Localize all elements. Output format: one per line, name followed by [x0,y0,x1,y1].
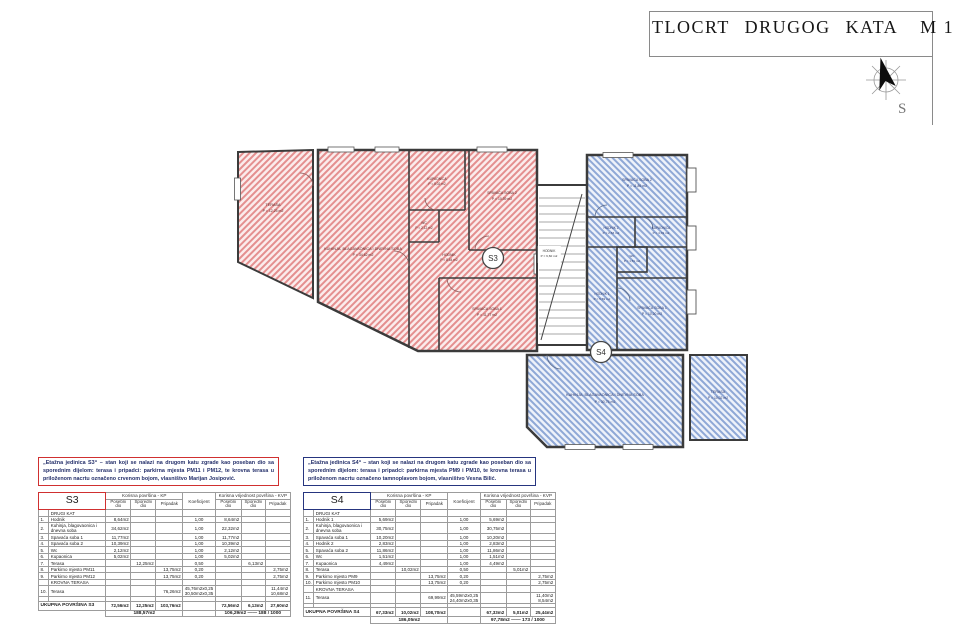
kvp-grand-total: 106,29m2 —— 188 / 1000 [215,610,290,617]
column-subheader: Sporedni dio [396,499,421,510]
area-value-cell [106,586,131,597]
room-area: P = 5,02 m2 [428,182,445,186]
column-subheader: Pripadak [530,499,555,510]
area-value-cell [506,592,530,603]
area-value-cell: 22,32m2 [215,523,241,534]
column-subheader: Sporedni dio [241,499,265,510]
room-area: P = 34,62 m2 [353,253,374,257]
total-value-cell: 67,33m2 [480,608,506,617]
room-label: TERASA [265,203,281,207]
room-area: P = 1,51 m2 [624,259,641,263]
room-area: P = 11,86 m2 [627,184,647,188]
area-value-cell [241,523,265,534]
north-compass: S [858,56,914,116]
sheet-border-top [649,11,933,12]
total-value-cell: 12,25m2 [131,601,156,610]
compass-label: S [898,101,906,116]
total-value-cell: 25,44m2 [530,608,555,617]
room-label: HODNIK [442,253,456,257]
table-cell [304,617,371,624]
table-row: 2.Kuhinja, blagovaonica i dnevna soba34,… [39,523,291,534]
coefficient-cell: 1,00 [183,523,216,534]
koeficijent-header: Koeficijent [448,493,481,510]
room-area: P = 12,25 m2 [263,209,284,213]
total-row: UKUPNA POVRŠINA S372,56m212,25m2103,76m2… [39,601,291,610]
drawing-sheet: TLOCRT DRUGOG KATAM 1 : 100 S [0,0,960,633]
area-table-s3: S3Korisna površina - KPKoeficijentKorisn… [38,492,291,617]
column-subheader: Posebni dio [480,499,506,510]
area-value-cell [265,523,290,534]
room-name-cell: Terasa [314,592,371,603]
total-label: UKUPNA POVRŠINA S3 [39,601,106,610]
room-name-cell: Kuhinja, blagovaonica i dnevna soba [314,523,371,534]
room-label: SPAVAĆA SOBA 1 [637,305,667,310]
area-value-cell [241,586,265,597]
column-subheader: Sporedni dio [506,499,530,510]
row-number: 10. [39,586,49,597]
row-number: 2. [304,523,314,534]
area-value-cell: 34,62m2 [106,523,131,534]
room-label: WC [630,254,636,258]
area-value-cell [421,523,448,534]
total-value-cell [448,608,481,617]
total-label: UKUPNA POVRŠINA S4 [304,608,371,617]
unit-label: S3 [39,493,106,510]
column-subheader: Posebni dio [215,499,241,510]
room-label: SPAVAĆA SOBA 1 [472,306,502,311]
table-row: 2.Kuhinja, blagovaonica i dnevna soba30,… [304,523,556,534]
total-value-cell [183,601,216,610]
unit-s3-description: „Etažna jedinica S3“ – stan koji se nala… [38,457,279,486]
area-value-cell [396,592,421,603]
s3-terrace-area [238,150,313,298]
area-value-cell [131,586,156,597]
title-scale: M 1 : 100 [920,17,960,37]
area-value-cell: 76,26m2 [156,586,183,597]
area-value-cell: 30,75m2 [371,523,396,534]
kvp-grand-total: 97,78m2 —— 173 / 1000 [480,617,555,624]
kvp-group-header: Korisna vrijednost površina - KVP [480,493,555,500]
area-value-cell: 69,99m2 [421,592,448,603]
table-row: 10.Terasa76,26m245,76m2x0,25 30,50m2x0,3… [39,586,291,597]
column-subheader: Pripadak [265,499,290,510]
kp-grand-total: 188,57m2 [106,610,183,617]
total-value-cell: 27,60m2 [265,601,290,610]
total-value-cell: 103,76m2 [156,601,183,610]
title-box-left-line [649,11,650,56]
room-label: HODNIK 1 [594,292,609,296]
area-value-cell [506,523,530,534]
table-row: 11.Terasa69,99m245,59m2x0,25 24,40m2x0,3… [304,592,556,603]
row-number: 2. [39,523,49,534]
room-label: KUPAONICA [427,177,447,181]
room-label: KUPAONICA [652,226,671,230]
room-area: P = 5,69 m2 [594,297,611,301]
total-value-cell: 6,13m2 [241,601,265,610]
drawing-title: TLOCRT DRUGOG KATAM 1 : 100 [652,17,930,38]
koeficijent-header: Koeficijent [183,493,216,510]
table-cell [183,610,216,617]
room-area: P = 2,12 m2 [415,226,432,230]
room-label: KUHINJA, BLAGAVAONICA I DNEVNA SOBA [324,247,402,251]
room-name-cell: Terasa [49,586,106,597]
area-value-cell: 11,40m2 8,54m2 [530,592,555,603]
room-label: WC [421,221,427,225]
unit-label: S4 [304,493,371,510]
total-value-cell: 108,70m2 [421,608,448,617]
total-row: UKUPNA POVRŠINA S467,33m210,02m2108,70m2… [304,608,556,617]
s3-unit-badge-label: S3 [488,254,498,263]
coefficient-cell: 45,59m2x0,25 24,40m2x0,35 [448,592,481,603]
area-value-cell [480,592,506,603]
stairwell-hall-area: P = 9,60 m2 [541,254,558,258]
area-value-cell: 30,75m2 [480,523,506,534]
room-area: P = 10,39 m2 [492,197,512,201]
floor-plan: TERASA P = 12,25 m2 KUHINJA, BLAGAVAONIC… [225,138,765,450]
room-area: P = 11,77 m2 [477,313,497,317]
room-area: P = 30,75 m2 [595,400,616,404]
s4-balconies [687,168,696,314]
area-value-cell [371,592,396,603]
total-value-cell: 5,01m2 [506,608,530,617]
area-value-cell: 11,44m2 10,68m2 [265,586,290,597]
grand-total-row: 186,05m297,78m2 —— 173 / 1000 [304,617,556,624]
apartment-s3: TERASA P = 12,25 m2 KUHINJA, BLAGAVAONIC… [235,147,541,351]
room-label: SPAVAĆA SOBA 2 [487,190,517,195]
kp-grand-total: 186,05m2 [371,617,448,624]
column-subheader: Posebni dio [106,499,131,510]
room-label: HODNIK 2 [603,226,618,230]
total-value-cell: 72,56m2 [215,601,241,610]
kvp-group-header: Korisna vrijednost površina - KVP [215,493,290,500]
total-value-cell: 72,56m2 [106,601,131,610]
area-table-s4: S4Korisna površina - KPKoeficijentKorisn… [303,492,556,624]
coefficient-cell: 1,00 [448,523,481,534]
title-text: TLOCRT DRUGOG KATA [652,17,898,37]
room-name-cell: Kuhinja, blagovaonica i dnevna soba [49,523,106,534]
area-value-cell [530,523,555,534]
room-area: P = 10,20 m2 [642,312,662,316]
area-value-cell [131,523,156,534]
table-header-row: S3Korisna površina - KPKoeficijentKorisn… [39,493,291,500]
area-value-cell [396,523,421,534]
room-area: P = 4,49 m2 [653,231,670,235]
total-value-cell: 67,33m2 [371,608,396,617]
room-area: P = 10,02 m2 [708,396,728,400]
table-header-row: S4Korisna površina - KPKoeficijentKorisn… [304,493,556,500]
column-subheader: Sporedni dio [131,499,156,510]
room-label: KUHINJA, BLAGAVAONICA I DNEVNA SOBA [566,393,644,397]
unit-s4-description: „Etažna jedinica S4“ – stan koji se nala… [303,457,536,486]
room-area: P = 8,64 m2 [440,258,457,262]
row-number: 11. [304,592,314,603]
column-subheader: Pripadak [421,499,448,510]
s4-unit-badge-label: S4 [596,348,606,357]
column-subheader: Pripadak [156,499,183,510]
table-cell [448,617,481,624]
grand-total-row: 188,57m2106,29m2 —— 188 / 1000 [39,610,291,617]
total-value-cell: 10,02m2 [396,608,421,617]
room-label: TERASA [711,390,726,394]
table-cell [39,610,106,617]
column-subheader: Posebni dio [371,499,396,510]
area-value-cell [156,523,183,534]
room-area: P = 2,83 m2 [603,231,620,235]
stairwell-hall-label: HODNIK [543,249,557,253]
area-value-cell [215,586,241,597]
stairwell: HODNIK P = 9,60 m2 [537,185,587,345]
room-label: SPAVAĆA SOBA 2 [622,177,652,182]
coefficient-cell: 45,76m2x0,25 30,50m2x0,35 [183,586,216,597]
